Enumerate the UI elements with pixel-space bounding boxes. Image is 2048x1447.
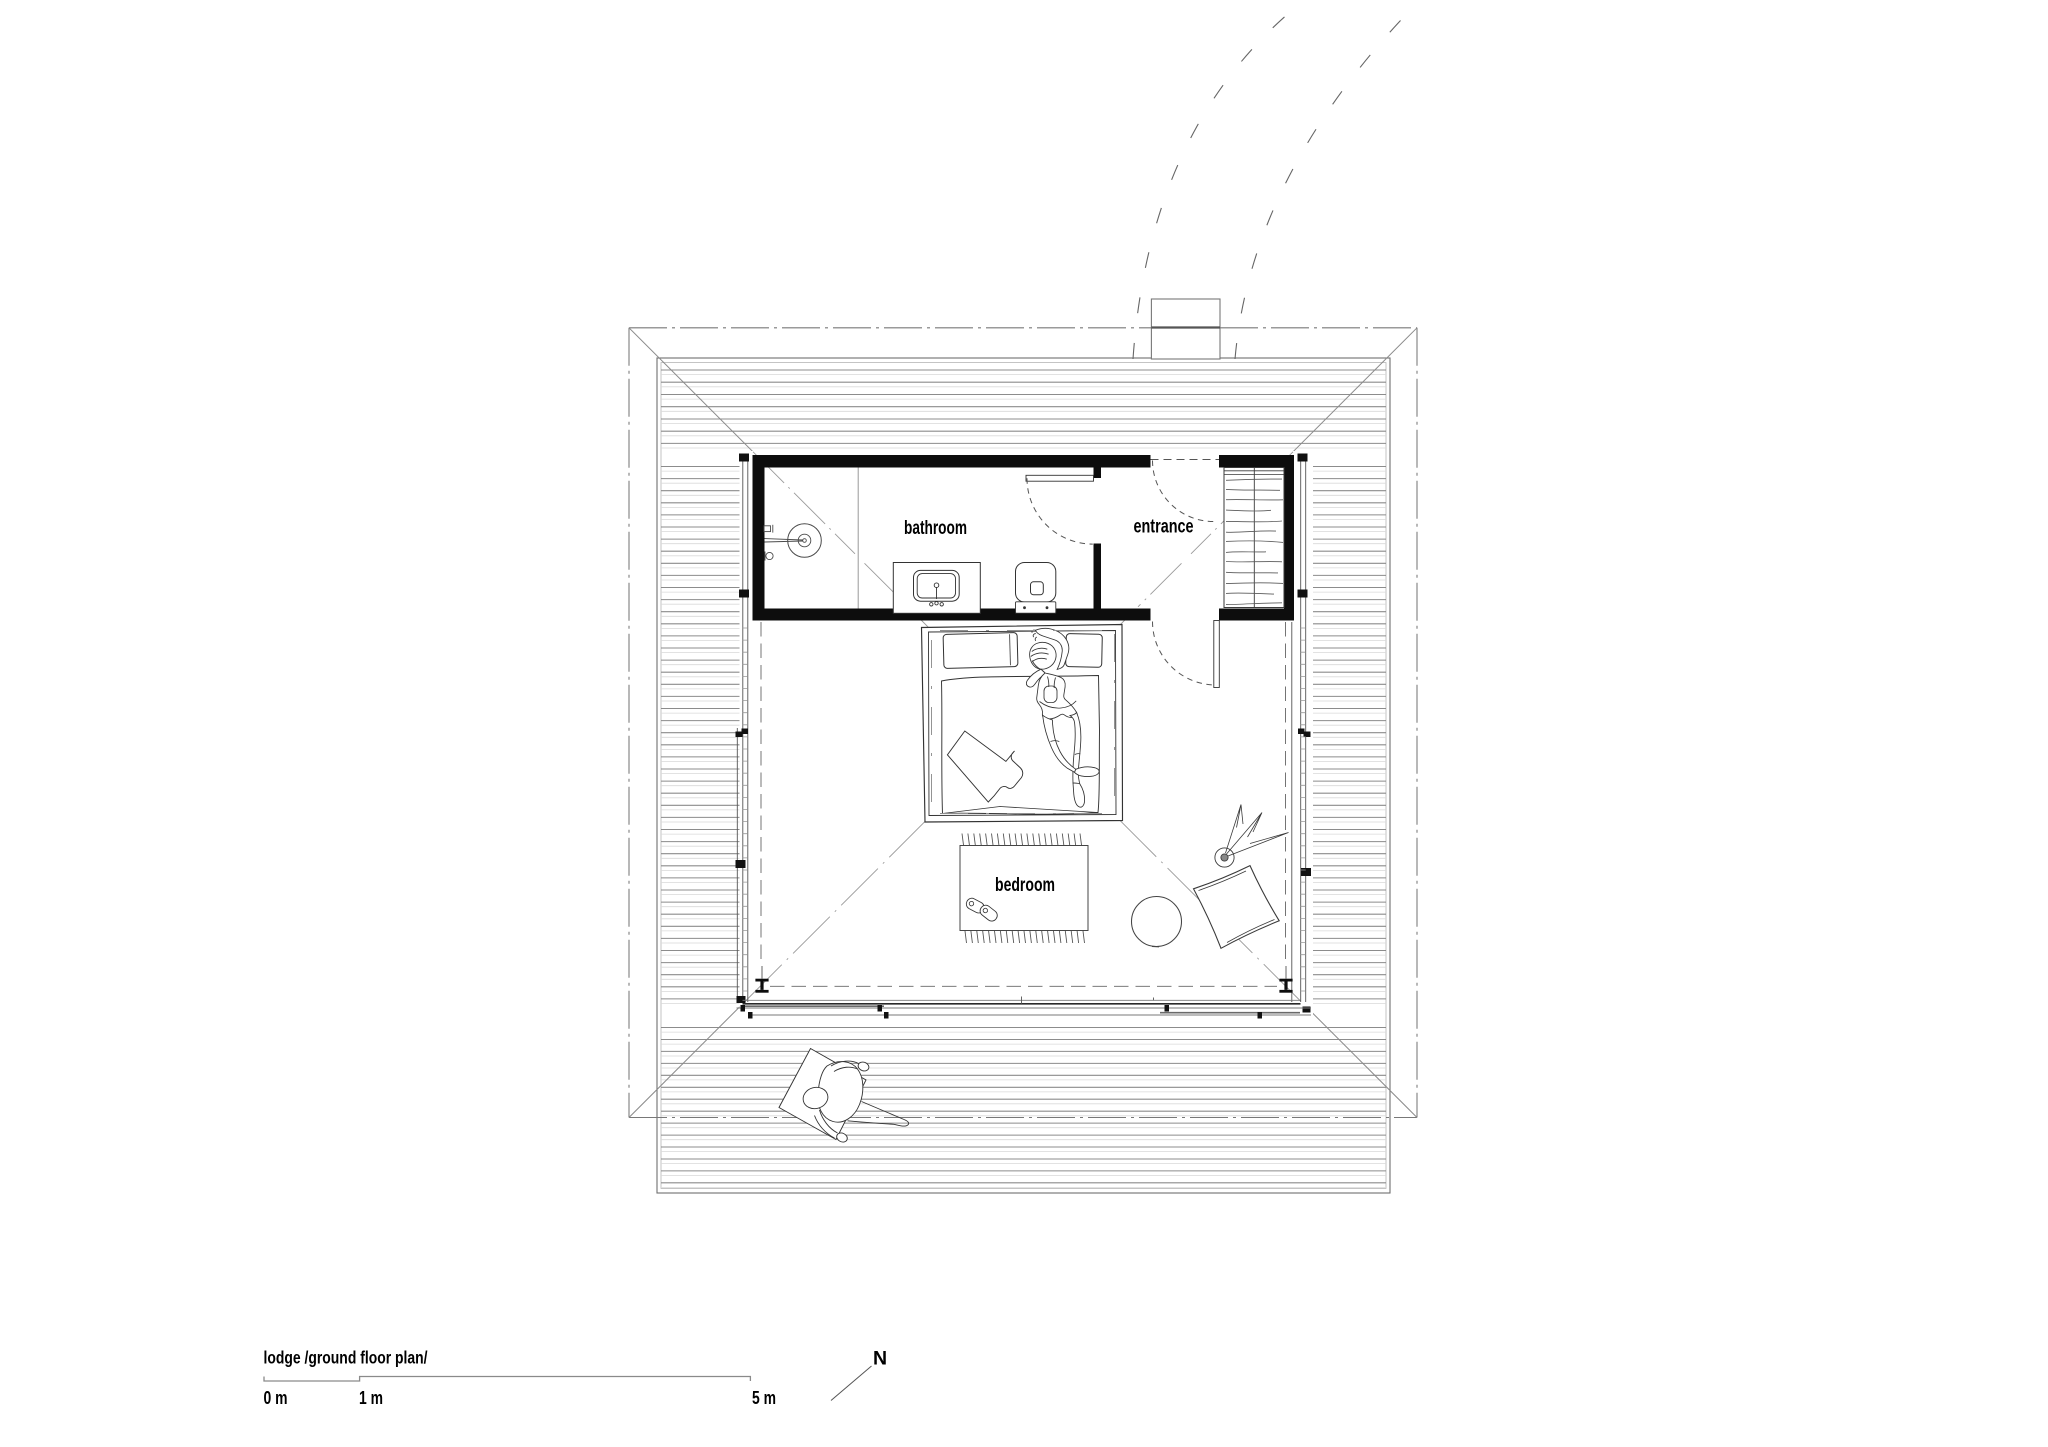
svg-text:lodge /ground floor plan/: lodge /ground floor plan/ — [264, 1348, 428, 1368]
svg-text:0 m: 0 m — [264, 1388, 288, 1408]
svg-text:entrance: entrance — [1134, 517, 1194, 538]
svg-text:5 m: 5 m — [752, 1388, 776, 1408]
svg-text:1 m: 1 m — [359, 1388, 383, 1408]
svg-text:bathroom: bathroom — [904, 518, 967, 539]
svg-text:bedroom: bedroom — [995, 875, 1055, 896]
svg-text:N: N — [873, 1348, 887, 1370]
